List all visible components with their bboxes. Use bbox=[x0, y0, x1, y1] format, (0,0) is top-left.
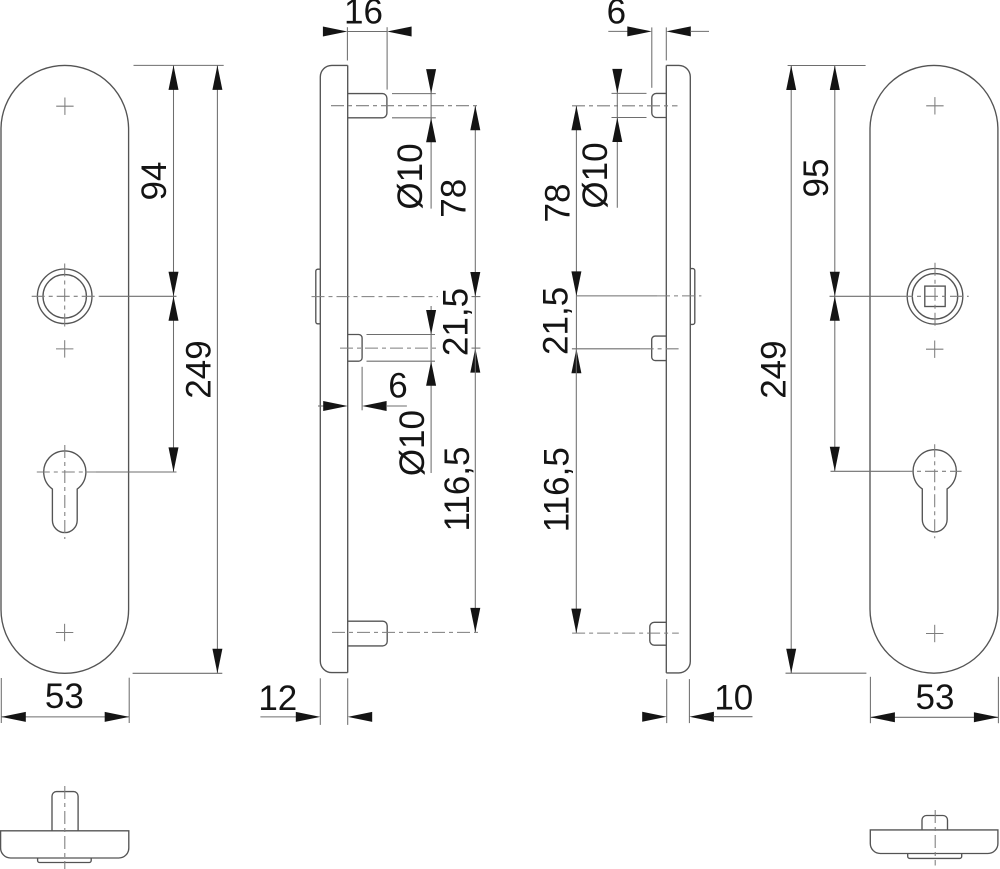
svg-text:16: 16 bbox=[344, 0, 383, 31]
svg-text:94: 94 bbox=[135, 162, 174, 201]
svg-text:249: 249 bbox=[179, 340, 218, 398]
svg-text:116,5: 116,5 bbox=[438, 447, 477, 532]
svg-text:6: 6 bbox=[607, 0, 626, 32]
svg-text:21,5: 21,5 bbox=[437, 288, 476, 356]
svg-text:12: 12 bbox=[258, 679, 297, 718]
svg-text:116,5: 116,5 bbox=[538, 447, 577, 532]
svg-text:53: 53 bbox=[45, 677, 84, 716]
svg-text:78: 78 bbox=[538, 184, 577, 223]
svg-text:78: 78 bbox=[435, 179, 474, 218]
svg-text:Ø10: Ø10 bbox=[576, 142, 615, 208]
svg-text:Ø10: Ø10 bbox=[391, 143, 430, 209]
svg-text:249: 249 bbox=[754, 340, 793, 398]
svg-text:21,5: 21,5 bbox=[537, 287, 576, 355]
svg-text:95: 95 bbox=[797, 159, 836, 198]
svg-text:6: 6 bbox=[388, 366, 407, 405]
svg-text:Ø10: Ø10 bbox=[393, 410, 432, 476]
svg-text:10: 10 bbox=[714, 679, 753, 718]
svg-text:53: 53 bbox=[916, 678, 955, 717]
